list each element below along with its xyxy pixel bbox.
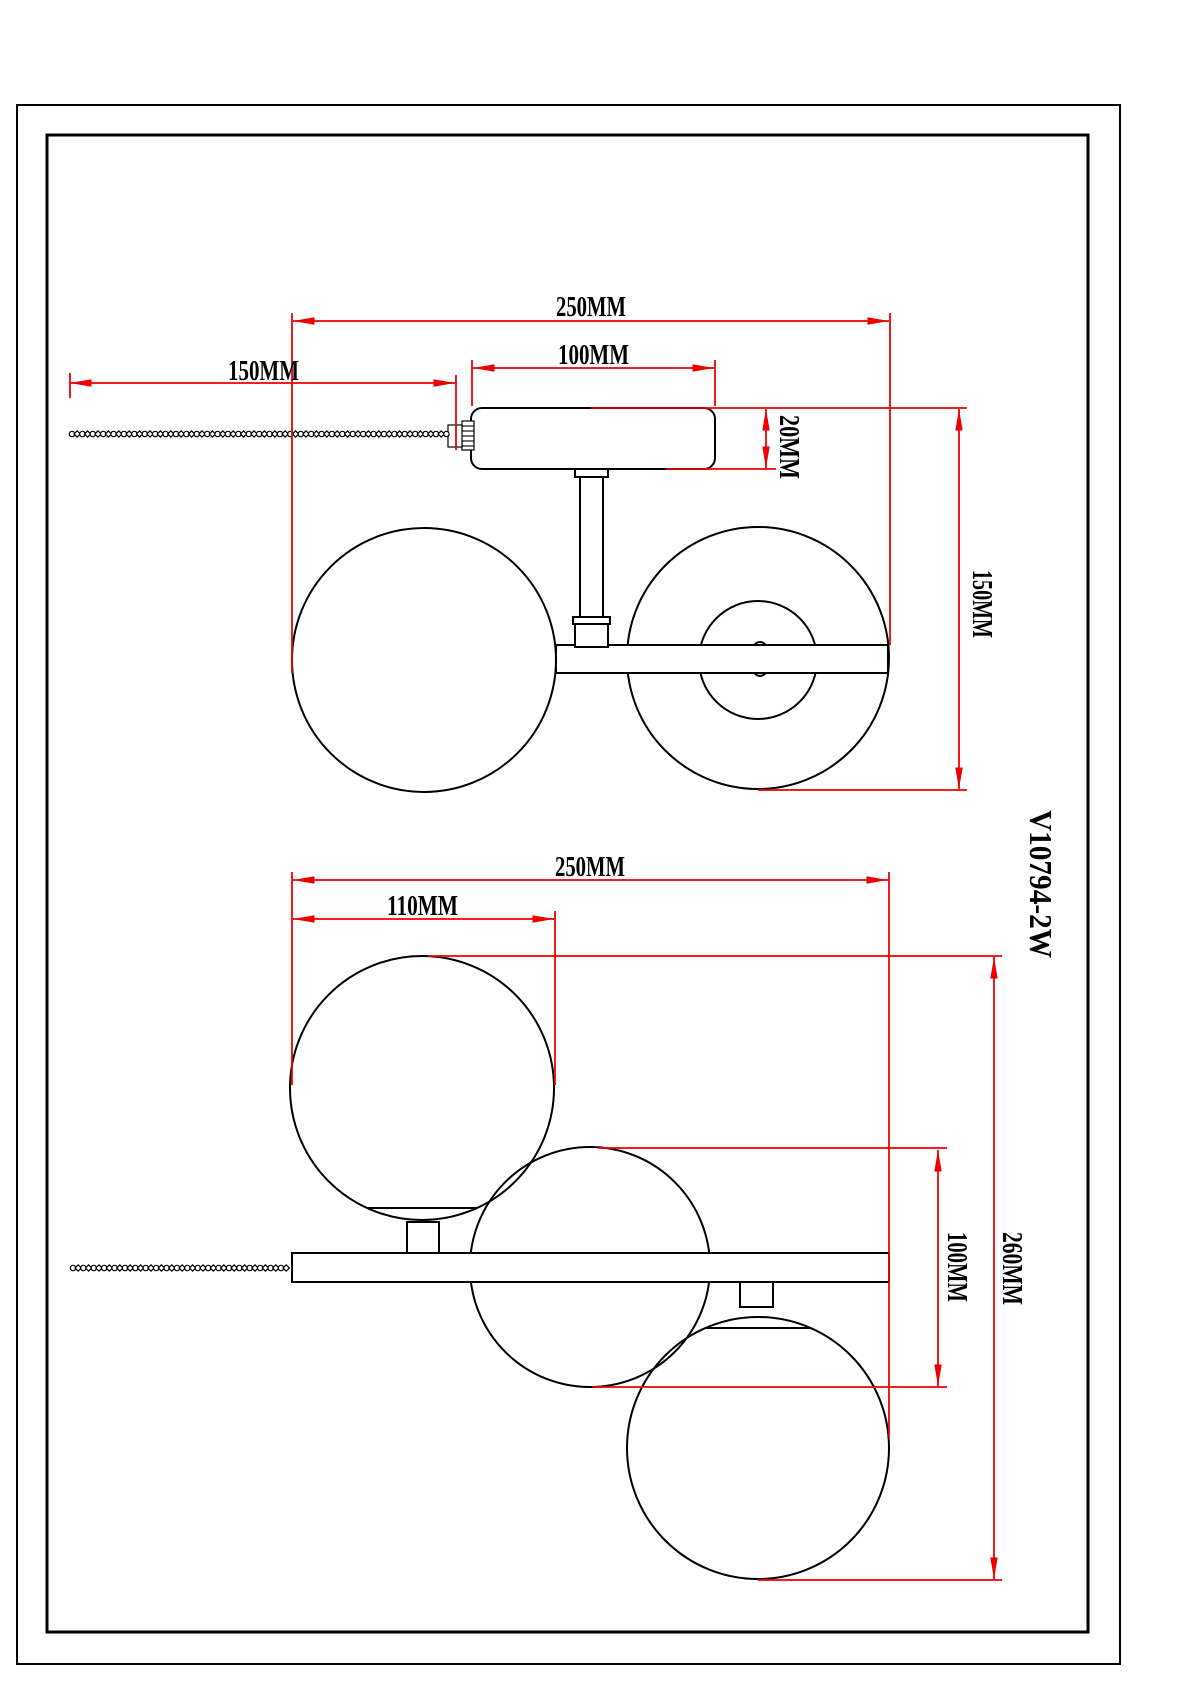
pull-chain (69, 431, 449, 437)
dim-label-globe-drop: 100MM (941, 1232, 972, 1302)
bottom-view-dimensions: 250MM 110MM 100MM 260MM (292, 852, 1027, 1580)
dim-label-fixture-height: 260MM (996, 1232, 1027, 1305)
globe-lower-stem (740, 1282, 773, 1307)
dim-label-globe-offset: 110MM (387, 891, 458, 922)
stem-lower-collar (575, 624, 608, 647)
globe-upper-stem (407, 1222, 439, 1254)
globe-upper-left (290, 956, 554, 1220)
sheet-border-outer (17, 105, 1120, 1664)
pull-chain (70, 1265, 289, 1271)
bottom-view-fixture (70, 956, 889, 1579)
canopy-plate (471, 408, 715, 469)
product-code-label: V10794-2W (1023, 810, 1059, 958)
dim-label-canopy-width: 100MM (558, 340, 629, 371)
bottom-view: 250MM 110MM 100MM 260MM (70, 852, 1027, 1580)
mount-bar (292, 1253, 889, 1282)
technical-drawing-canvas: 250MM 100MM 150MM 20MM 150MM (0, 0, 1190, 1684)
stem-ring (573, 617, 610, 624)
dim-label-overall-width: 250MM (555, 852, 625, 883)
dim-label-chain-length: 150MM (228, 356, 299, 387)
drawing-sheet: 250MM 100MM 150MM 20MM 150MM (0, 0, 1190, 1684)
globe-lower-right (627, 1317, 889, 1579)
globe-left (292, 528, 556, 792)
top-view-dimensions: 250MM 100MM 150MM 20MM 150MM (70, 292, 997, 790)
stem-top-collar (575, 469, 608, 477)
arm-bar (556, 645, 888, 673)
dim-label-overall-width: 250MM (556, 292, 626, 323)
top-view: 250MM 100MM 150MM 20MM 150MM (69, 292, 997, 792)
stem-tube (580, 477, 603, 617)
dim-label-canopy-height: 20MM (773, 415, 804, 479)
dim-label-fixture-height: 150MM (966, 570, 997, 638)
